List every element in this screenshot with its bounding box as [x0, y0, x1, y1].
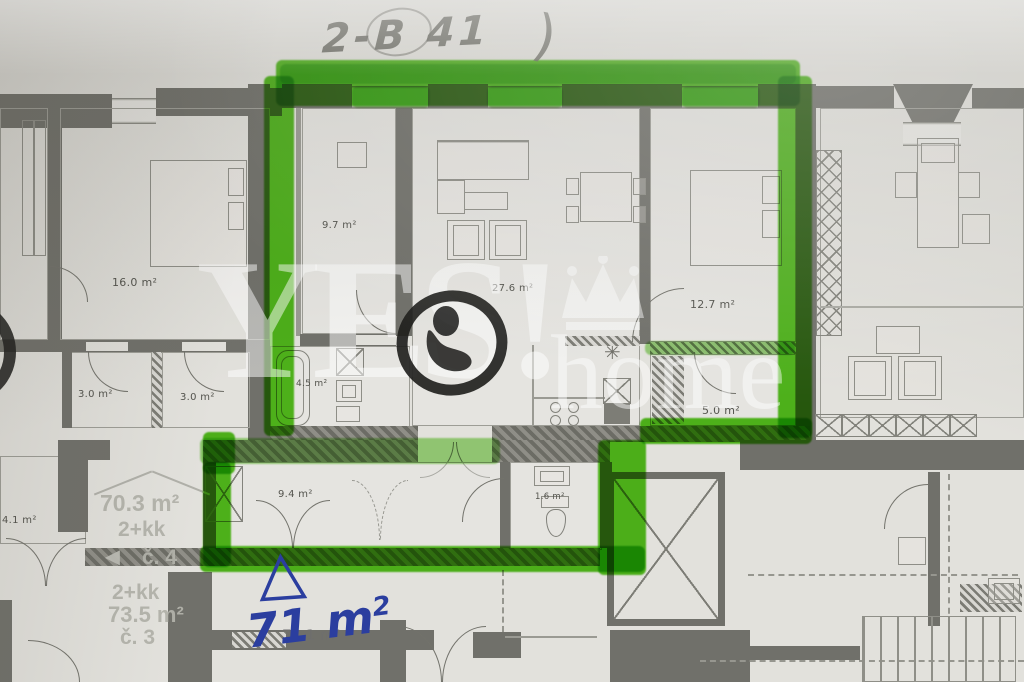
- balcony-railing-x: [896, 414, 923, 437]
- balcony-railing-x: [815, 414, 842, 437]
- highlight-window-tab: [352, 86, 430, 108]
- room-label-30a: 3.0 m²: [78, 389, 113, 400]
- door-gap: [86, 342, 128, 351]
- furniture-small-table: [898, 537, 926, 565]
- furniture-coffee-table-right: [876, 326, 920, 354]
- furniture-sofa-chaise: [437, 180, 465, 214]
- staircase: [862, 616, 1016, 682]
- stairwell-unit4-number: č. 4: [142, 546, 177, 570]
- room-label-94: 9.4 m²: [278, 489, 313, 500]
- stairwell-unit3-area: 73.5 m²: [108, 602, 184, 628]
- highlight-right-block: [598, 440, 646, 575]
- dimension-line-h: [505, 636, 597, 638]
- furniture-wardrobe-left: [22, 120, 46, 256]
- furniture-pillow: [228, 168, 244, 196]
- wall-bottom-right: [750, 646, 860, 660]
- furniture-armchair: [898, 356, 942, 400]
- wall-top-c: [816, 86, 894, 108]
- wall-right-band: [740, 440, 915, 470]
- furniture-pillow: [921, 143, 955, 163]
- floor-plan-photo: ✳: [0, 0, 1024, 682]
- door-arc-bottom-corridor: [28, 640, 80, 682]
- balcony-railing-x: [842, 414, 869, 437]
- balcony-railing-x: [950, 414, 977, 437]
- furniture-chair: [633, 206, 646, 223]
- sink-niche-right: [988, 578, 1020, 604]
- crown-icon: [548, 256, 658, 334]
- wall-stub: [62, 346, 72, 428]
- door-arc-right-unit: [884, 484, 928, 529]
- wall-divider-hatch: [152, 352, 162, 428]
- door-arc-bottom-left-b: [46, 538, 86, 586]
- stairwell-unit4-layout: 2+kk: [118, 518, 165, 542]
- furniture-chair: [566, 178, 579, 195]
- highlight-window-tab: [487, 86, 563, 108]
- corridor-dashed-line-v: [948, 474, 950, 624]
- furniture-nightstand: [895, 172, 917, 198]
- wall-top-d: [972, 88, 1024, 108]
- furniture-chair: [566, 206, 579, 223]
- furniture-coffee-table: [464, 192, 508, 210]
- highlight-window-tab: [682, 86, 760, 108]
- stairwell-unit4-area: 70.3 m²: [100, 490, 179, 517]
- dimension-line-v: [502, 570, 504, 632]
- furniture-dresser: [337, 142, 367, 168]
- highlight-hall-top: [200, 438, 500, 464]
- room-label-wc: 1.6 m²: [535, 492, 565, 502]
- furniture-wardrobe-x: [816, 150, 842, 336]
- wall-right-corridor: [928, 472, 940, 626]
- wall-hall-top-right: [492, 440, 610, 462]
- wall-below-elevator: [610, 630, 750, 682]
- furniture-chair: [633, 178, 646, 195]
- wall-left-edge: [0, 600, 12, 682]
- room-label-127: 12.7 m²: [690, 298, 735, 311]
- balcony-railing-x: [923, 414, 950, 437]
- partial-stamp-circle-icon: [0, 302, 44, 402]
- wall-closet-top: [58, 440, 110, 460]
- watermark-brand-bottom: home: [550, 320, 786, 426]
- wall-right-interior-line: [820, 306, 1024, 308]
- room-label-41: 4.1 m²: [2, 515, 37, 526]
- person-stamp-icon: [390, 284, 516, 406]
- wall-closet: [58, 460, 88, 532]
- wc-sink: [534, 466, 570, 486]
- balcony-railing-x: [869, 414, 896, 437]
- direction-arrow-icon: ◄: [100, 543, 125, 572]
- door-arc-bottom-left-a: [6, 538, 46, 586]
- furniture-sofa: [437, 140, 529, 180]
- corridor-dashed-line: [748, 574, 1018, 576]
- stairwell-unit3-number: č. 3: [120, 626, 155, 650]
- room-label-16: 16.0 m²: [112, 276, 157, 289]
- furniture-cabinet: [962, 214, 990, 244]
- furniture-dining-table: [580, 172, 632, 222]
- blue-area-sup: 2: [371, 591, 393, 623]
- furniture-armchair: [848, 356, 892, 400]
- wall-right-bottom-band: [908, 440, 1024, 470]
- furniture-nightstand: [958, 172, 980, 198]
